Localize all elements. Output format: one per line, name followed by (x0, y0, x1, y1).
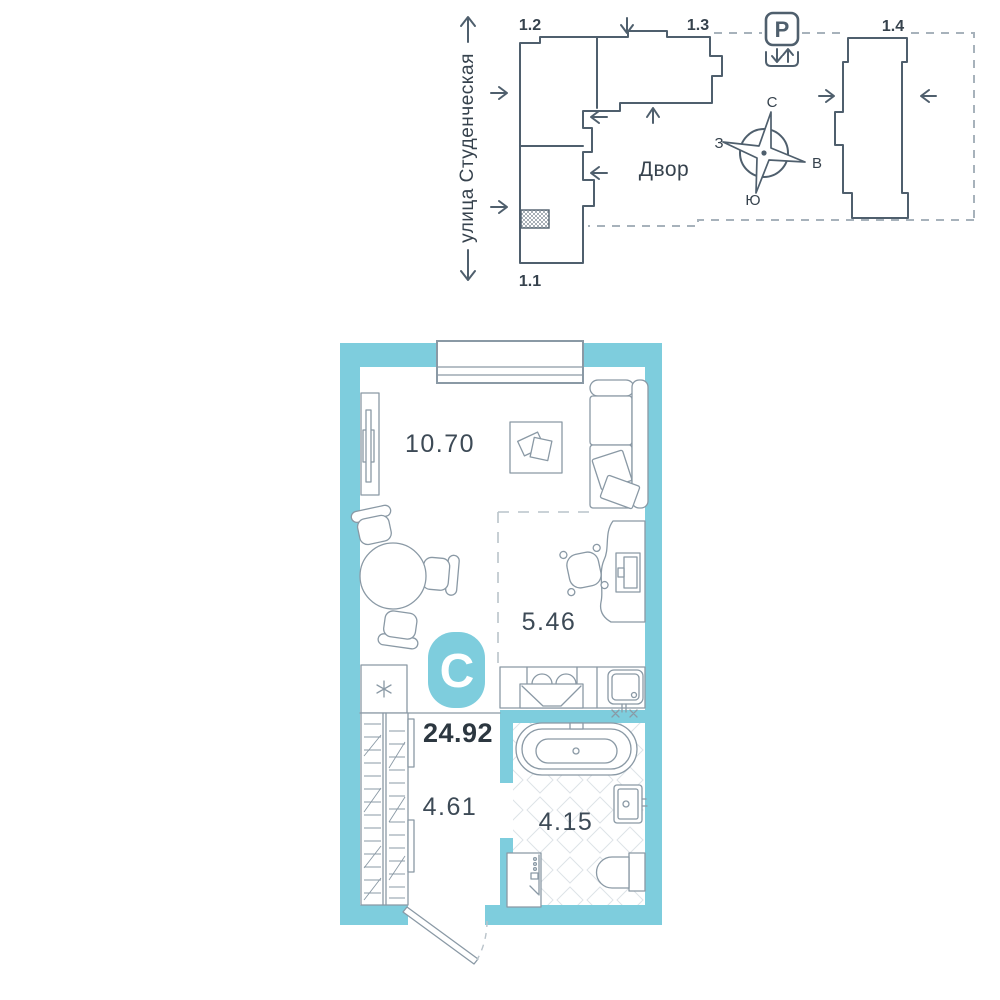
wall-bottom-left (340, 905, 408, 925)
parking-arrow-out-icon (783, 49, 793, 62)
building-1-2-label: 1.2 (519, 17, 541, 34)
site-boundary (588, 33, 974, 226)
arrow-right-icon (491, 87, 507, 99)
arrow-right-icon (819, 90, 834, 102)
wardrobe-door-panel (408, 719, 414, 767)
street-label: улица Студенческая (457, 53, 478, 243)
kitchen-zone-boundary (498, 512, 589, 665)
type-badge-letter: С (440, 645, 475, 698)
window (437, 341, 583, 383)
apartment-plan: С 24.92 10.70 5.46 4.61 4.15 (340, 341, 662, 964)
boundary-dash-4 (588, 220, 974, 226)
compass-rose: С В Ю З (714, 94, 822, 209)
street: улица Студенческая (457, 17, 478, 280)
door-leaf (403, 907, 478, 964)
building-1-1-label: 1.1 (519, 273, 541, 290)
dining-chair (377, 609, 421, 649)
compass-south-label: Ю (745, 192, 760, 209)
arrow-left-icon (591, 111, 607, 123)
kitchen-counter (500, 667, 645, 717)
apartment-location-marker (521, 210, 549, 228)
street-arrow-up-icon (461, 17, 475, 42)
kitchen-sink (608, 670, 643, 717)
coffee-table (510, 422, 562, 473)
wall-bottom-right (485, 905, 662, 925)
bathroom-area-label: 4.15 (539, 808, 594, 836)
parking-arrow-in-icon (772, 49, 782, 62)
compass-north-label: С (767, 94, 778, 111)
bathroom-sink (614, 785, 647, 823)
desk (601, 521, 645, 622)
tv-unit (361, 393, 379, 495)
wall-left (340, 343, 360, 925)
parking-sign: P (766, 13, 798, 66)
site-plan: улица Студенческая (457, 13, 974, 290)
building-1-4-label: 1.4 (882, 18, 904, 35)
arrow-right-icon (491, 201, 507, 213)
dining-table (350, 504, 459, 649)
street-arrow-down-icon (461, 250, 475, 280)
wardrobe-door-panel (408, 820, 414, 872)
bathtub (516, 723, 637, 775)
boundary-dash-3 (911, 33, 974, 220)
toilet (597, 853, 646, 891)
kitchen-area-label: 5.46 (522, 608, 577, 636)
door-swing-arc (477, 921, 487, 960)
dining-table-top (360, 543, 426, 609)
wall-bathroom-left-upper (500, 710, 513, 783)
wardrobe (361, 713, 414, 905)
compass-east-label: В (812, 155, 822, 172)
building-1-4-outline (835, 38, 908, 218)
fridge (361, 665, 407, 713)
wall-bathroom-top (500, 710, 645, 723)
building-block (520, 31, 722, 263)
sofa (590, 380, 648, 509)
living-room-area-label: 10.70 (405, 430, 475, 458)
parking-letter: P (775, 17, 790, 42)
entrance-door (403, 907, 487, 964)
window-frame (437, 341, 583, 383)
plan-canvas: улица Студенческая (0, 0, 1000, 1000)
arrow-left-icon (921, 90, 936, 102)
arrow-left-icon (591, 167, 607, 179)
type-badge: С (428, 632, 485, 708)
bathtub-faucet (570, 723, 583, 729)
dining-chair (421, 553, 459, 596)
arrow-up-icon (647, 108, 659, 123)
courtyard-label: Двор (639, 158, 690, 181)
building-1-3-label: 1.3 (687, 17, 709, 34)
entrance-arrows (491, 18, 936, 213)
washing-machine (507, 853, 541, 907)
compass-center-dot (761, 150, 766, 155)
hallway-area-label: 4.61 (423, 793, 478, 821)
compass-west-label: З (714, 135, 723, 152)
total-area-label: 24.92 (423, 718, 493, 748)
